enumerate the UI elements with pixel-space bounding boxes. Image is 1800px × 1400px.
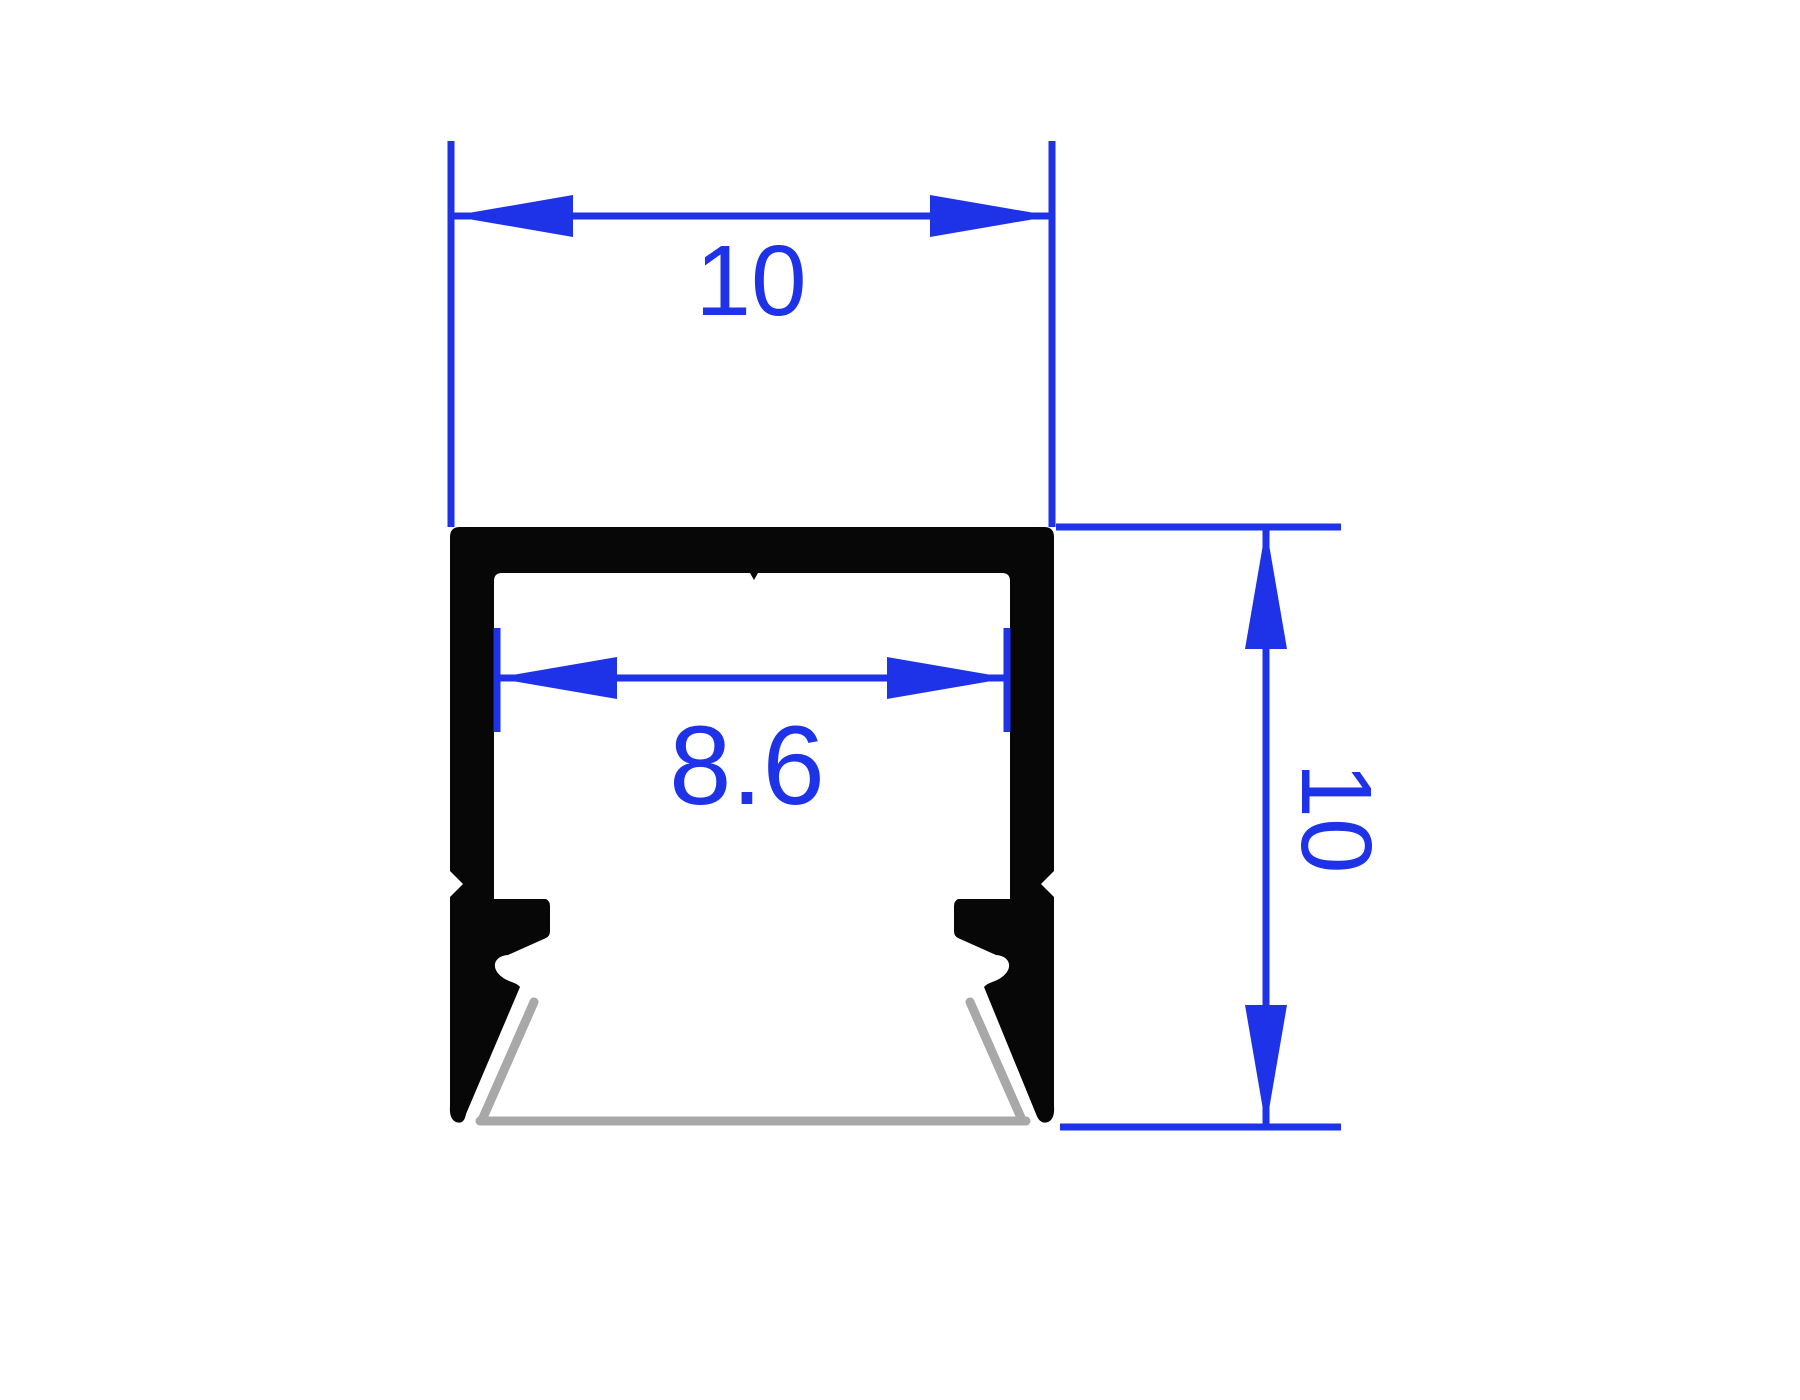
inner-width-dimension: 8.6 [495,628,1009,828]
arrowhead-right-icon [930,195,1052,237]
arrowhead-right-icon [887,657,1009,699]
outer-height-dimension-label: 10 [1280,762,1392,873]
technical-drawing: 10 8.6 10 [0,0,1800,1400]
arrowhead-left-icon [495,657,617,699]
drawing-canvas: 10 8.6 10 [0,0,1800,1400]
arrowhead-left-icon [451,195,573,237]
shadow-lines [480,1002,1026,1121]
arrowhead-down-icon [1245,1005,1287,1127]
arrowhead-up-icon [1245,527,1287,649]
outer-width-dimension-label: 10 [695,225,806,337]
outer-height-dimension: 10 [1056,527,1392,1127]
inner-width-dimension-label: 8.6 [669,703,825,828]
outer-width-dimension: 10 [451,141,1052,527]
